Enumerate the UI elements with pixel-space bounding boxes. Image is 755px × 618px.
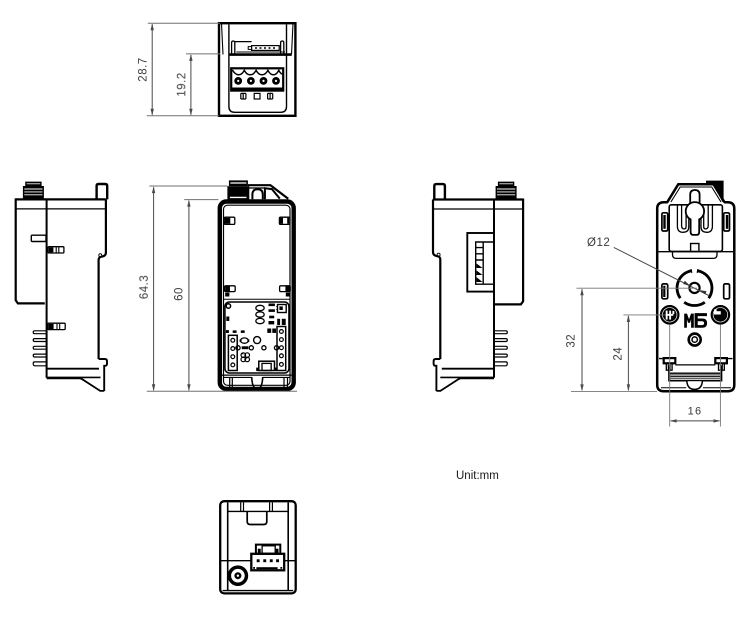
svg-text:24: 24 [613,347,625,361]
svg-text:28.7: 28.7 [138,57,150,81]
svg-text:16: 16 [688,405,703,417]
svg-text:32: 32 [566,334,578,348]
svg-text:Unit:mm: Unit:mm [456,470,499,482]
svg-text:64.3: 64.3 [139,275,151,299]
svg-text:19.2: 19.2 [176,72,188,96]
svg-text:Ø12: Ø12 [587,237,610,249]
svg-text:60: 60 [174,287,186,301]
